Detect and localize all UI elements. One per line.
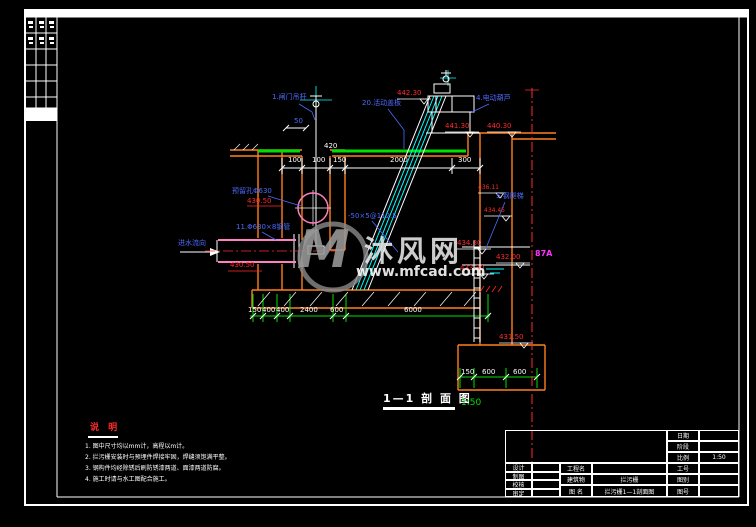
frame-top-band	[25, 10, 748, 17]
leader-label: 1.闸门吊杆	[272, 94, 307, 101]
signature-strip-filled-cell	[25, 108, 57, 121]
drawing-name-value: 拦污栅1—1剖面图	[592, 485, 667, 497]
dim-label: 100	[312, 157, 325, 164]
title-block-label: 图号	[667, 485, 699, 497]
elevation-label: 436.11	[478, 185, 499, 191]
dim-label: 400	[262, 307, 275, 314]
elevation-label: 434.45	[484, 208, 505, 214]
title-block-value	[592, 463, 667, 474]
leader-label: 4.电动葫芦	[476, 95, 511, 102]
section-title-underline	[383, 407, 455, 410]
leader-label: 预留孔Φ630	[232, 188, 272, 195]
title-block-label: 工程名	[560, 463, 592, 474]
scale-value: 1:50	[699, 452, 739, 463]
dim-label: 600	[482, 369, 495, 376]
centerline-crosses	[300, 70, 456, 114]
notes-title-underline	[88, 436, 118, 438]
watermark-url: www.mfcad.com	[356, 264, 486, 280]
title-block-label: 工号	[667, 463, 699, 474]
title-block-label: 日期	[667, 430, 699, 441]
title-block-value	[532, 463, 560, 472]
notes-title: 说 明	[90, 424, 120, 433]
title-block-value	[699, 485, 739, 497]
elevation-label: 430.50	[247, 198, 272, 205]
dim-label: 150	[333, 157, 346, 164]
title-block-label: 比例	[667, 452, 699, 463]
elevation-label: 442.30	[397, 90, 422, 97]
title-block-label: 建筑物	[560, 474, 592, 485]
watermark: M 沐风网 www.mfcad.com	[292, 218, 482, 293]
section-scale: 1:50	[461, 399, 481, 408]
structure-name-value: 拦污栅	[592, 474, 667, 485]
elevation-label: 430.50	[230, 262, 255, 269]
title-block-value	[532, 480, 560, 489]
flow-direction-label: 进水流向	[178, 240, 206, 247]
leader-label: 5.钢爬梯	[496, 193, 524, 200]
dim-label: 6000	[404, 307, 422, 314]
dim-label: 2000	[390, 157, 408, 164]
elevation-label: 432.00	[496, 254, 521, 261]
elevation-label: 440.30	[487, 123, 512, 130]
leader-label: 11.Φ630×8钢管	[236, 224, 290, 231]
title-block-label: 校核	[505, 480, 532, 489]
note-line: 2. 拦污栅安装时与预埋件焊接牢固，焊缝须饱满平整。	[85, 455, 231, 461]
note-line: 3. 钢构件均经除锈后刷防锈漆两道、面漆两道防腐。	[85, 466, 225, 472]
elevation-label: 441.30	[445, 123, 470, 130]
title-block-value	[532, 489, 560, 497]
dim-label: 600	[513, 369, 526, 376]
dim-label: 2400	[300, 307, 318, 314]
note-line: 4. 施工时请与水工图配合施工。	[85, 477, 171, 483]
title-block-value	[699, 474, 739, 485]
dim-label: 150	[248, 307, 261, 314]
title-block-header-cell	[505, 430, 667, 463]
dim-label: 300	[458, 157, 471, 164]
note-line: 1. 图中尺寸均以mm计，高程以m计。	[85, 444, 188, 450]
watermark-logo: M	[298, 220, 350, 280]
leader-label: 20.活动盖板	[362, 100, 401, 107]
dim-label: 420	[324, 143, 337, 150]
cad-sheet: 442.30 441.30 440.30 436.11 434.45 434.3…	[0, 0, 756, 527]
section-mark-label: 87A	[535, 250, 552, 258]
title-block-label: 审定	[505, 489, 532, 497]
title-block-label: 图 名	[560, 485, 592, 497]
section-title: 1—1 剖 面 图	[383, 393, 472, 404]
dim-label: 100	[288, 157, 301, 164]
title-block-label: 制图	[505, 472, 532, 480]
title-block-label: 图别	[667, 474, 699, 485]
water-level-symbol	[482, 265, 508, 273]
title-block-value	[699, 430, 739, 441]
title-block-label: 阶段	[667, 441, 699, 452]
signature-strip-grid	[25, 17, 57, 108]
dim-label: 150	[461, 369, 474, 376]
flow-arrowhead	[210, 248, 220, 256]
title-block-value	[699, 441, 739, 452]
dim-label: 600	[330, 307, 343, 314]
title-block-label: 设计	[505, 463, 532, 472]
elevation-label: 431.50	[499, 334, 524, 341]
dim-label: 50	[294, 118, 303, 125]
title-block-value	[532, 472, 560, 480]
title-block-value	[699, 463, 739, 474]
dim-label: 400	[276, 307, 289, 314]
